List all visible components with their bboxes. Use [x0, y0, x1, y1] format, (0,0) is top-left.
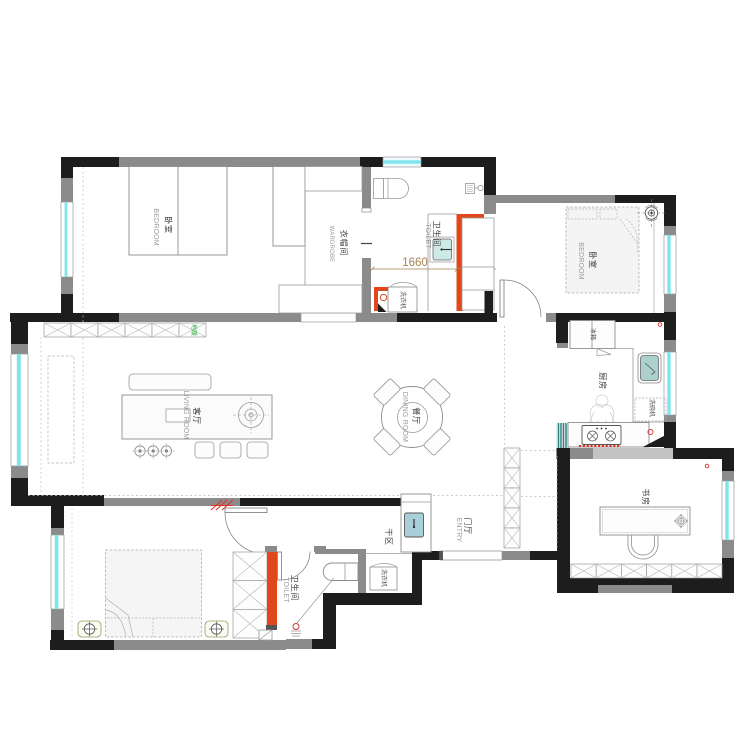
svg-text:餐厅: 餐厅 — [412, 407, 421, 425]
svg-text:卫生间: 卫生间 — [290, 575, 300, 601]
svg-text:门厅: 门厅 — [463, 517, 473, 535]
svg-text:卧室: 卧室 — [588, 251, 598, 269]
svg-text:卫生间: 卫生间 — [432, 221, 442, 247]
svg-text:WARDROBE: WARDROBE — [328, 226, 334, 263]
svg-text:洗碗机: 洗碗机 — [648, 399, 656, 417]
svg-text:干区: 干区 — [384, 528, 393, 546]
svg-text:书房: 书房 — [641, 488, 651, 506]
svg-text:BEDROOM: BEDROOM — [577, 242, 584, 280]
svg-text:DINING ROOM: DINING ROOM — [401, 392, 408, 442]
svg-text:客厅: 客厅 — [192, 407, 202, 425]
svg-text:1660: 1660 — [402, 257, 428, 269]
svg-text:BEDROOM: BEDROOM — [152, 208, 159, 246]
svg-text:洗衣机: 洗衣机 — [399, 291, 407, 309]
svg-text:卧室: 卧室 — [164, 216, 174, 234]
svg-text:冰箱: 冰箱 — [589, 328, 597, 340]
svg-text:厨房: 厨房 — [598, 372, 608, 390]
svg-text:地暖: 地暖 — [190, 324, 198, 336]
svg-text:TOILET: TOILET — [282, 577, 289, 603]
svg-text:LIVING ROOM: LIVING ROOM — [182, 391, 189, 440]
svg-text:洗衣机: 洗衣机 — [380, 569, 388, 587]
svg-text:衣帽间: 衣帽间 — [339, 230, 349, 256]
svg-text:TOILET: TOILET — [424, 223, 431, 249]
svg-text:ENTRY: ENTRY — [455, 518, 462, 543]
